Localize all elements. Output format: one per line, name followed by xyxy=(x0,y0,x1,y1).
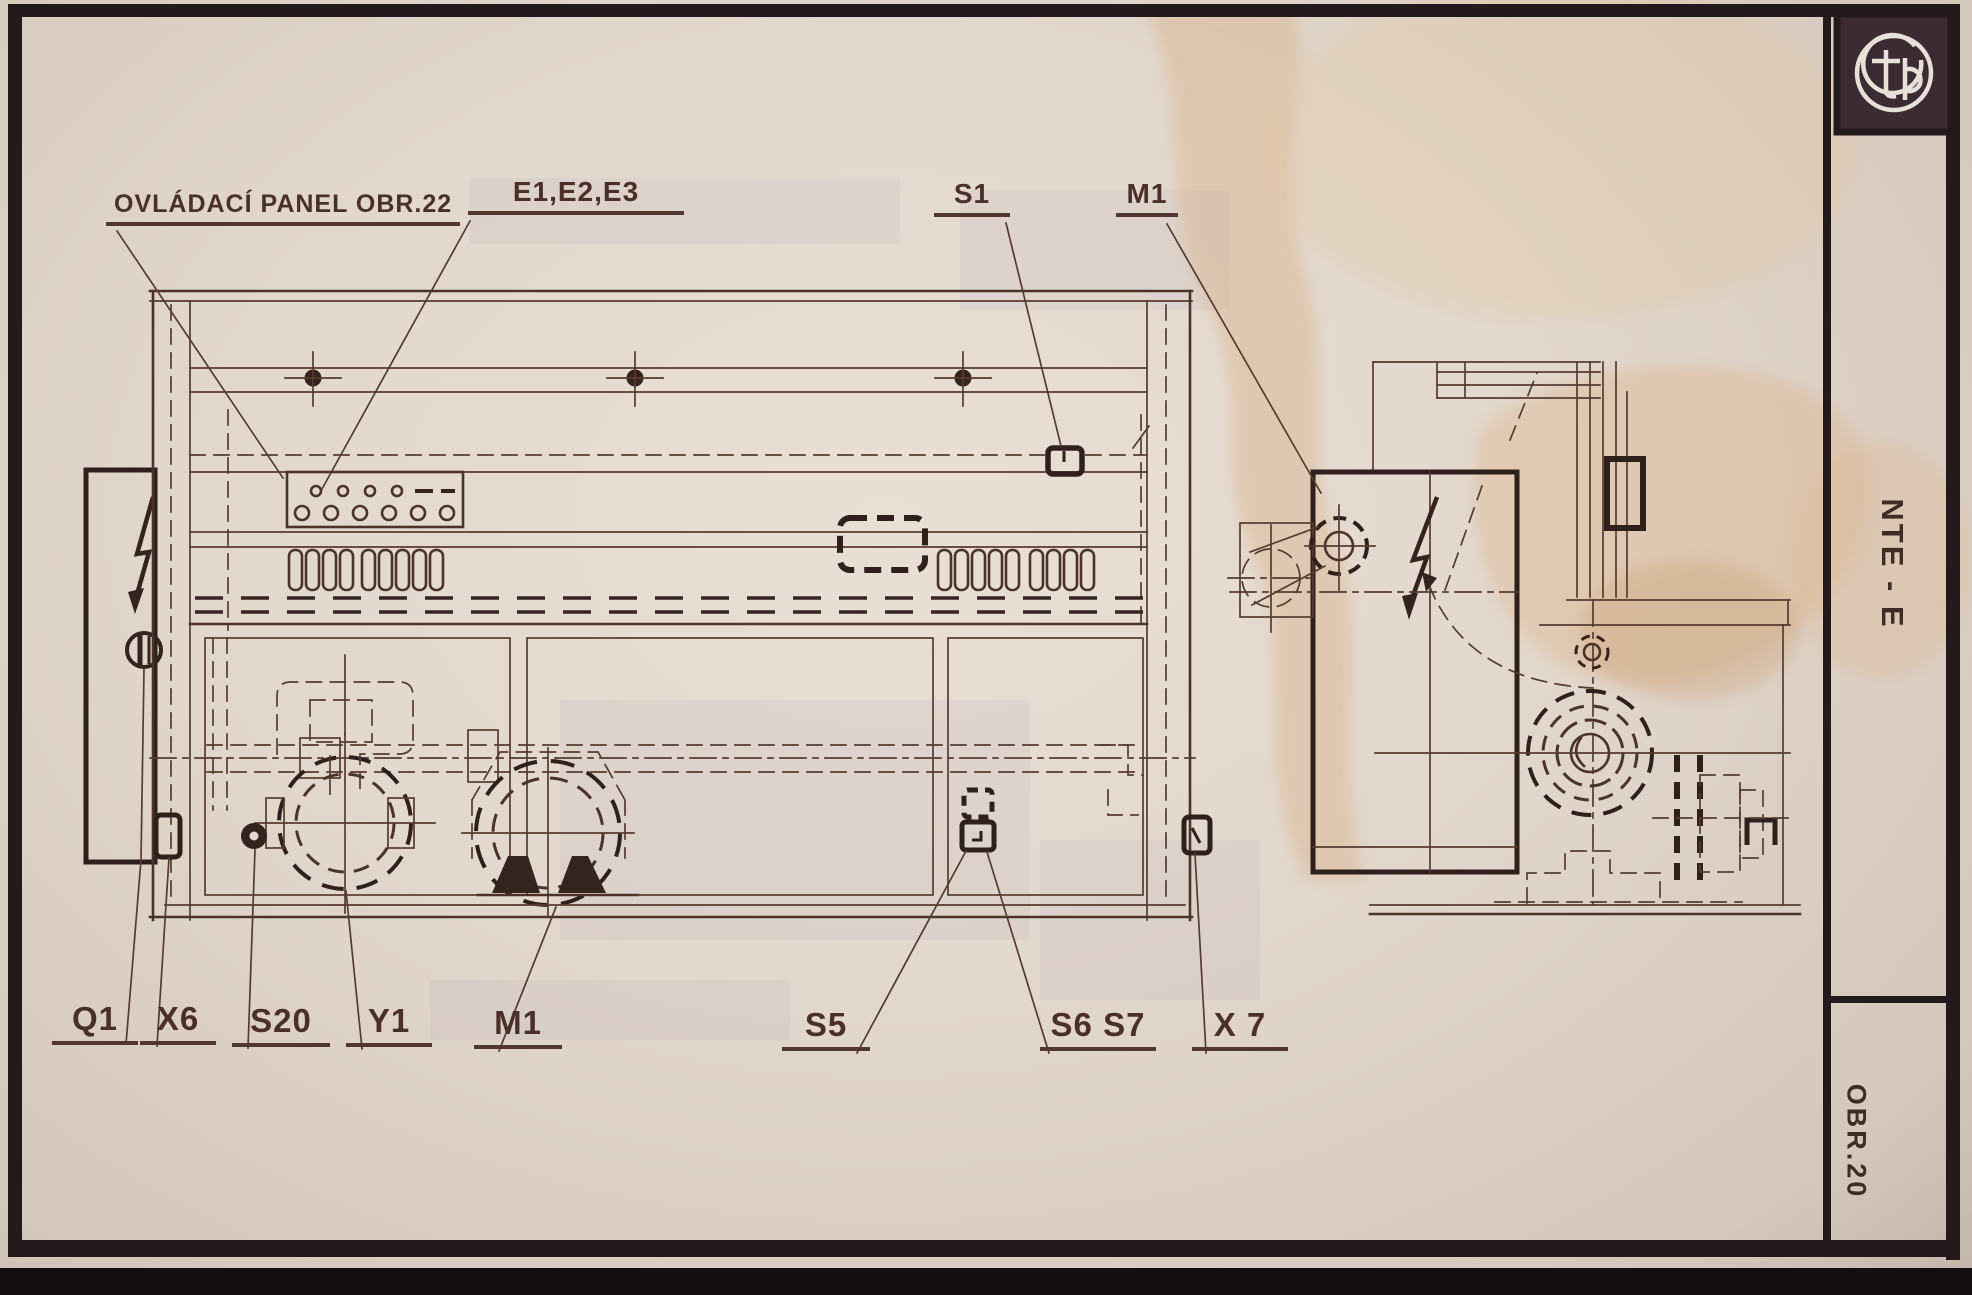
clutch-y1 xyxy=(255,655,435,913)
dashed-window xyxy=(840,518,925,570)
callout-panel-note: OVLÁDACÍ PANEL OBR.22 xyxy=(106,190,460,226)
cabinet-q1 xyxy=(86,470,161,862)
photo-edge xyxy=(0,1268,1972,1295)
control-panel xyxy=(287,472,463,527)
callout-s6-s7: S6 S7 xyxy=(1040,1006,1156,1051)
scanned-drawing-sheet: OVLÁDACÍ PANEL OBR.22 E1,E2,E3 S1 M1 Q1 … xyxy=(0,0,1972,1295)
stain-top-wash xyxy=(1260,0,1860,320)
lightning-bolt-icon xyxy=(136,497,153,598)
title-block-divider xyxy=(1823,14,1831,1246)
title-block-row-divider xyxy=(1826,996,1958,1003)
callout-s1: S1 xyxy=(934,178,1010,217)
lightning-bolt-icon xyxy=(1410,497,1437,604)
callout-x7: X 7 xyxy=(1192,1006,1288,1051)
vent-slots xyxy=(289,550,1094,590)
figure-number-label: OBR.20 xyxy=(1841,1067,1872,1217)
callout-s5: S5 xyxy=(782,1006,870,1051)
switch-s1-symbol xyxy=(1048,448,1082,474)
callout-s20: S20 xyxy=(232,1002,330,1047)
callout-m1-bottom: M1 xyxy=(474,1004,562,1049)
callout-m1-top: M1 xyxy=(1116,178,1178,217)
rail-bolts xyxy=(285,352,991,406)
left-post xyxy=(153,291,228,920)
right-post xyxy=(1133,291,1190,920)
callout-q1: Q1 xyxy=(52,1000,138,1045)
callout-x6: X6 xyxy=(140,1000,216,1045)
callout-y1: Y1 xyxy=(346,1002,432,1047)
stain-dark-spot xyxy=(1580,560,1800,700)
sensor-s20 xyxy=(241,823,267,849)
machine-model-label: NTE - E xyxy=(1874,469,1910,659)
logo-box xyxy=(1837,14,1951,132)
connector-x6-symbol xyxy=(156,815,180,857)
callout-lights-e1-e2-e3: E1,E2,E3 xyxy=(468,176,684,215)
